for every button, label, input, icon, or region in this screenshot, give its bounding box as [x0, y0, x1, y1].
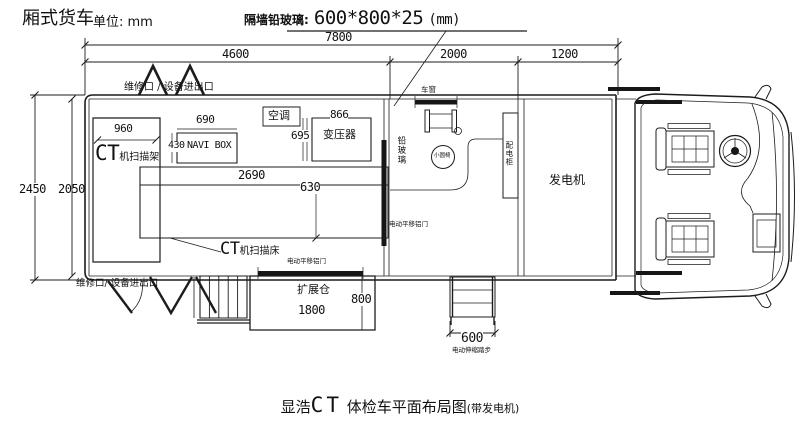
vehicle-type-title: 厢式货车 [22, 10, 94, 29]
dim-width-inner: 2050 [58, 183, 85, 196]
sliding-door-label-middle: 电动平移铝门 [389, 221, 428, 228]
drawing-linework [0, 0, 800, 428]
ct-bed-label: CT机扫描床 [220, 241, 279, 259]
mirror-bottom [755, 294, 771, 308]
dim-expansion-length: 1800 [298, 304, 325, 317]
ct-gantry-label: CT机扫描架 [95, 142, 159, 164]
vehicle-body [85, 95, 616, 280]
ct-vehicle-floorplan: 厢式货车 单位: mm 隔墙铅玻璃: 600*800*25 (mm) 7800 … [0, 0, 800, 428]
ct-gantry-en: CT [95, 141, 119, 165]
ac-label: 空调 [268, 110, 290, 122]
steps-label: 电动伸缩踏步 [452, 347, 491, 354]
top-access-label: 维修口 / 设备进出口 [124, 83, 214, 94]
dim-total-length: 7800 [325, 31, 352, 44]
dim-width-outer: 2450 [19, 183, 46, 196]
telescopic-steps [450, 277, 495, 325]
glass-note-size: 600*800*25 [314, 7, 423, 29]
sliding-door-bar [258, 271, 363, 276]
caption-main: 体检车平面布局图 [342, 398, 467, 416]
dist-cabinet-label: 配电柜 [505, 141, 513, 167]
transformer-label: 变压器 [323, 129, 356, 141]
partition-wall-control-generator [518, 99, 524, 276]
glass-note-prefix: 隔墙铅玻璃: [244, 13, 309, 27]
cab-drawing [608, 85, 795, 307]
floor-boundary [390, 139, 503, 190]
dim-transformer-depth: 695 [291, 130, 309, 142]
bottom-access-label: 维修口/ 设备进出口 [76, 279, 158, 289]
caption-ct: CT [311, 393, 342, 417]
dim-steps-width: 600 [461, 332, 483, 346]
dim-generator-room: 1200 [551, 48, 578, 61]
staircase [197, 276, 250, 323]
round-stool-label: 小圆椅 [434, 154, 451, 160]
caption-prefix: 显浩 [281, 398, 311, 416]
dim-navi-width: 690 [196, 114, 214, 126]
window-label: 车窗 [421, 86, 436, 94]
dim-navi-depth: 430 [168, 141, 185, 152]
passenger-seat [656, 214, 714, 265]
desk-symbol [425, 110, 462, 135]
caption-suffix: (带发电机) [467, 402, 520, 415]
front-bumper [791, 132, 795, 262]
driver-seat [656, 124, 714, 175]
windshield-line [772, 112, 777, 281]
dim-bed-width: 630 [300, 181, 320, 194]
generator-label: 发电机 [549, 174, 585, 187]
dim-transformer-width: 866 [330, 109, 348, 121]
sliding-door-leaf [382, 140, 387, 246]
cab-outline [635, 94, 789, 299]
control-room [390, 96, 518, 198]
drawing-caption: 显浩CT 体检车平面布局图(带发电机) [281, 394, 520, 416]
bed-label-leader [170, 238, 221, 252]
ct-gantry-cn: 机扫描架 [119, 152, 159, 163]
expansion-bay-label: 扩展仓 [297, 284, 330, 296]
window-bar [415, 100, 457, 105]
dim-bed-length: 2690 [238, 169, 265, 182]
ct-bed-cn: 机扫描床 [239, 246, 279, 257]
steering-wheel [720, 136, 751, 167]
navi-box-label: NAVI BOX [187, 141, 231, 152]
dim-control-room: 2000 [440, 48, 467, 61]
dim-ct-room: 4600 [222, 48, 249, 61]
mirror-top [755, 85, 771, 99]
glass-note-suffix: (mm) [428, 12, 460, 28]
glass-note: 隔墙铅玻璃: 600*800*25 (mm) [244, 9, 460, 29]
unit-label: 单位: mm [93, 16, 153, 30]
sliding-door-label-expansion: 电动平移铝门 [287, 258, 326, 265]
dim-gantry: 960 [114, 123, 132, 135]
partition-glass-label: 铅玻璃 [396, 136, 405, 165]
desk-chair-dot [455, 128, 462, 135]
ct-bed-en: CT [220, 239, 239, 259]
dim-expansion-depth: 800 [351, 293, 371, 306]
